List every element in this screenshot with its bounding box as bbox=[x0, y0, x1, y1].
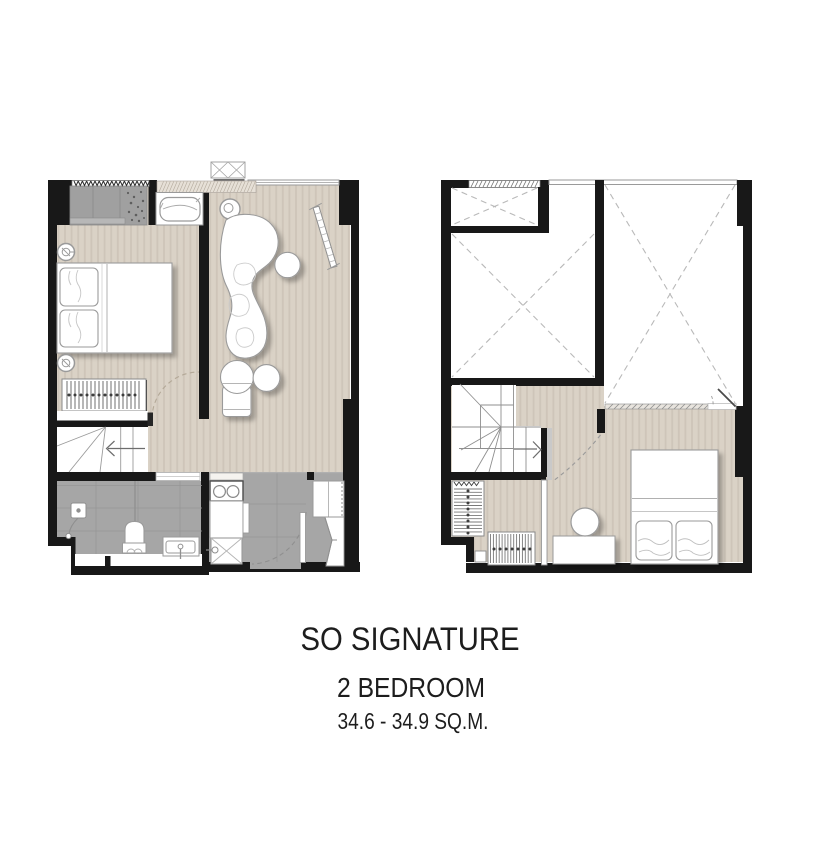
svg-text:2 BEDROOM: 2 BEDROOM bbox=[337, 672, 485, 703]
svg-text:34.6 - 34.9 SQ.M.: 34.6 - 34.9 SQ.M. bbox=[338, 708, 489, 734]
svg-text:SO SIGNATURE: SO SIGNATURE bbox=[301, 621, 520, 657]
